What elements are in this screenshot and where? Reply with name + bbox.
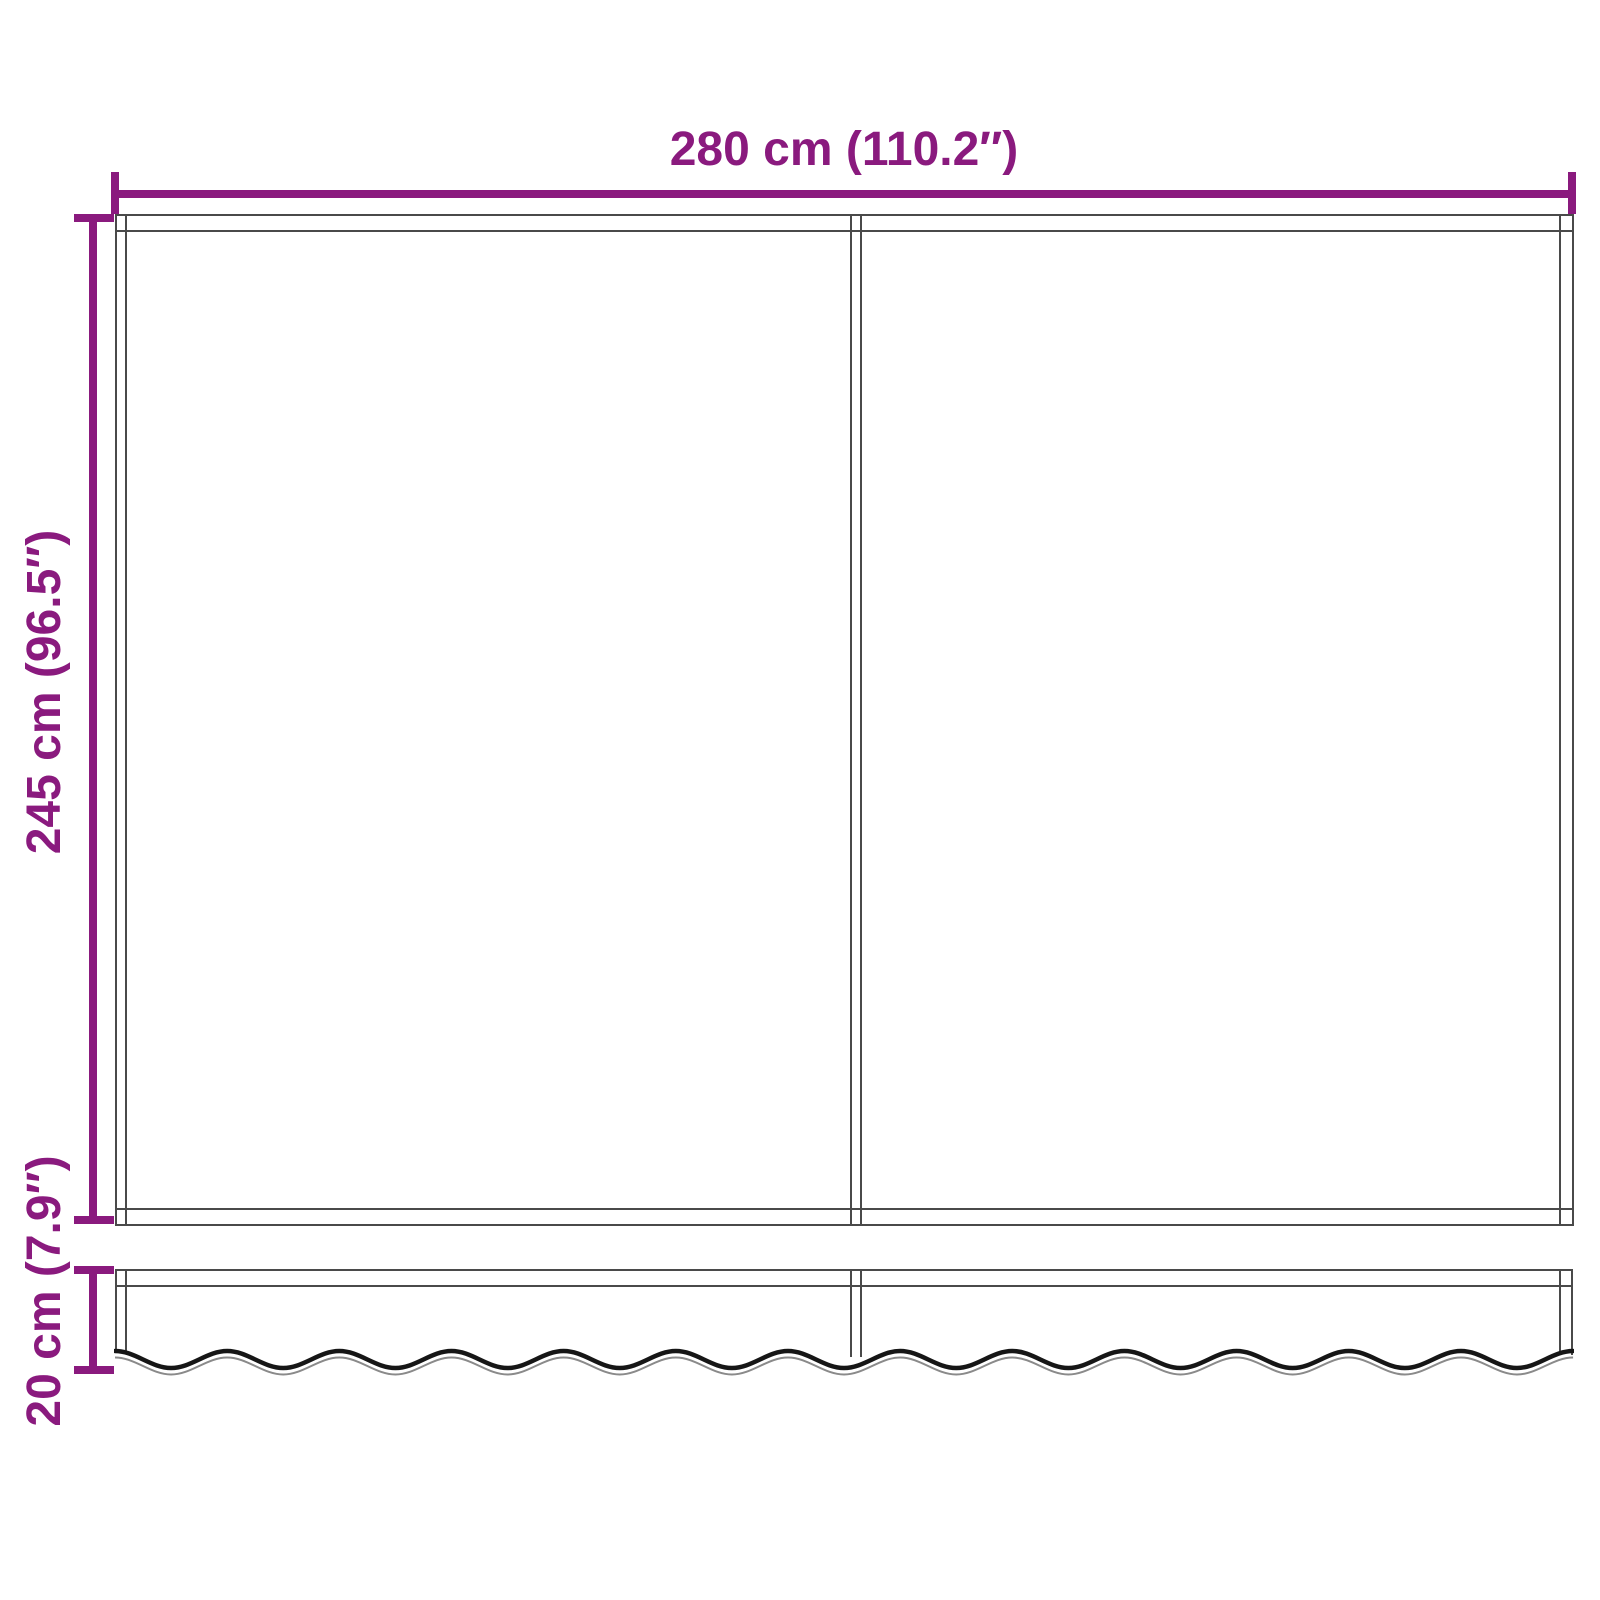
valance-height-dimension-line bbox=[89, 1272, 97, 1370]
width-dimension-tick-right bbox=[1568, 172, 1576, 214]
valance-wave-edge bbox=[114, 1340, 1574, 1395]
valance-height-dimension-tick-bottom bbox=[74, 1366, 114, 1374]
valance-wave-main-line bbox=[115, 1351, 1573, 1368]
main-panel-hem-right bbox=[1559, 216, 1561, 1224]
main-panel-outline bbox=[115, 214, 1574, 1226]
height-dimension-label: 245 cm (96.5″) bbox=[21, 530, 69, 855]
valance-hem-top bbox=[117, 1285, 1571, 1287]
valance-height-dimension-tick-top bbox=[74, 1266, 114, 1274]
panel-seam-line-left bbox=[850, 216, 852, 1224]
width-dimension-tick-left bbox=[111, 172, 119, 214]
main-panel-hem-top bbox=[117, 230, 1572, 232]
panel-seam-line-right bbox=[860, 216, 862, 1224]
height-dimension-tick-bottom bbox=[74, 1216, 114, 1224]
valance-top-edge bbox=[115, 1269, 1573, 1271]
main-panel-hem-left bbox=[125, 216, 127, 1224]
width-dimension-line bbox=[115, 190, 1572, 198]
height-dimension-tick-top bbox=[74, 214, 114, 222]
valance-height-dimension-label: 20 cm (7.9″) bbox=[21, 1155, 69, 1426]
main-panel-hem-bottom bbox=[117, 1208, 1572, 1210]
width-dimension-label: 280 cm (110.2″) bbox=[670, 126, 1019, 174]
dimension-diagram: 280 cm (110.2″) 245 cm (96.5″) 20 cm (7.… bbox=[0, 0, 1600, 1600]
height-dimension-line bbox=[89, 218, 97, 1222]
